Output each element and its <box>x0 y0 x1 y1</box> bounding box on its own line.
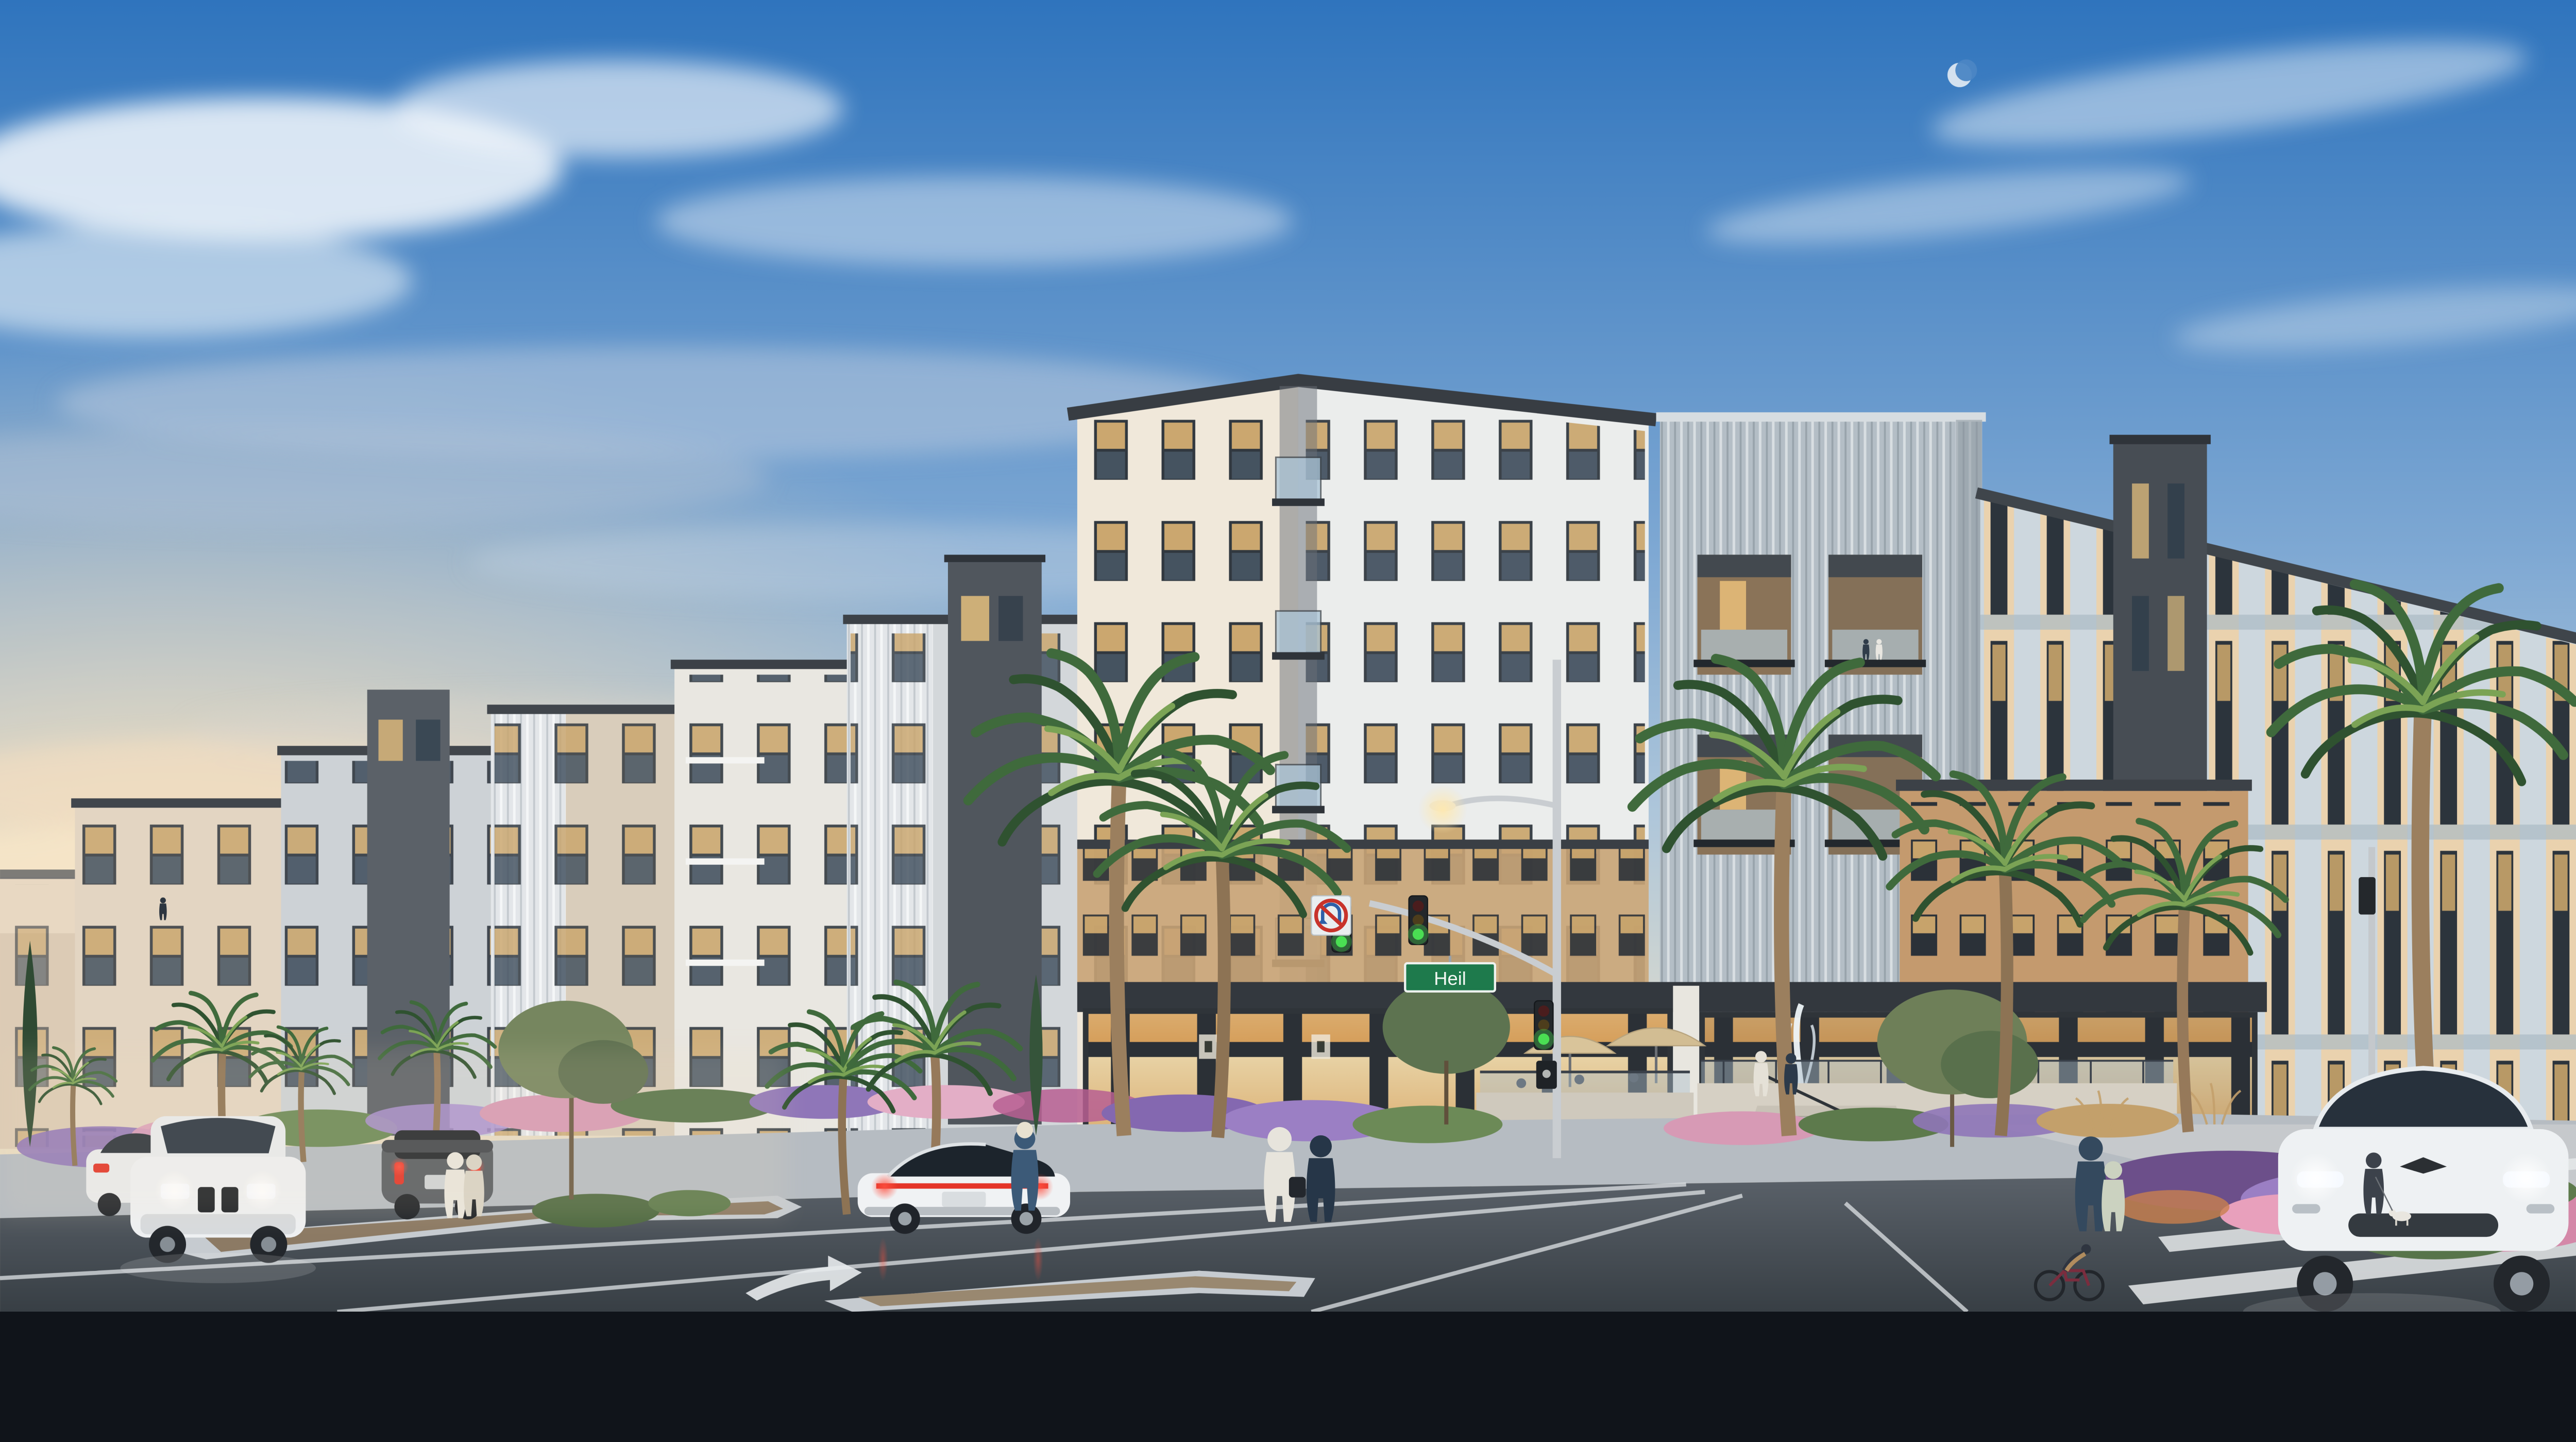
pedestrian-signal <box>1536 1061 1557 1089</box>
headlight-glow <box>2290 1152 2342 1204</box>
no-u-turn-sign <box>1311 896 1350 935</box>
scene: Heil <box>0 0 2576 1312</box>
street-name-label: Heil <box>1434 968 1466 989</box>
signal-back-right <box>2359 877 2376 915</box>
sun-hat <box>1016 1122 1033 1138</box>
traffic-signal-2 <box>1408 896 1429 945</box>
charcoal-tower-mid <box>948 562 1042 1125</box>
patio-glass-rail <box>1480 1072 1690 1095</box>
architectural-rendering: Heil <box>0 0 2576 1312</box>
headlight-glow <box>2501 1152 2552 1204</box>
dusk-haze <box>0 1049 787 1218</box>
storefront-fascia <box>1077 982 2267 1012</box>
duffel-bag <box>1289 1177 1306 1198</box>
streetlamp-glow <box>1418 785 1467 834</box>
traffic-signal-3 <box>1533 1001 1554 1050</box>
